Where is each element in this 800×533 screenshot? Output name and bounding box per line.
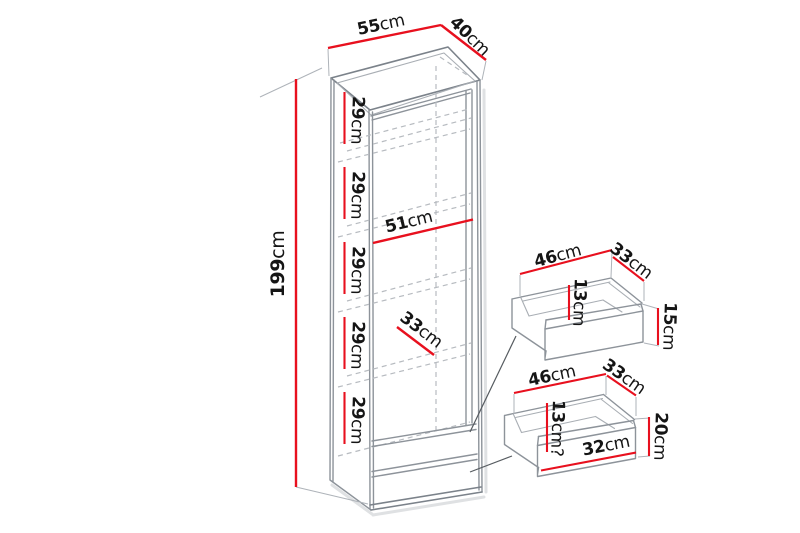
bottom-drawer-detail: 46cm 33cm 13cm? 32cm 20cm [505,355,671,478]
top-drawer-detail: 46cm 33cm 13cm 15cm [512,239,680,361]
shelf-spacing-label-1: 29cm [346,96,368,145]
shelf-spacing-label-5: 29cm [346,396,368,445]
bottom-drawer-inner-depth-label: 13cm? [546,400,568,457]
top-drawer-width-label: 46cm [532,240,584,272]
top-drawer-inner-depth-label: 13cm [568,278,590,327]
shelf-spacing-label-2: 29cm [346,171,368,220]
bottom-drawer-width-label: 46cm [526,361,577,391]
top-drawer-depth-label: 33cm [606,239,656,284]
diagram-canvas: 55cm 40cm 199cm 29cm 29cm 29cm 29cm 29cm… [0,0,800,533]
cabinet-height-label: 199cm [267,231,289,298]
shelf-spacing-label-4: 29cm [346,321,368,370]
furniture-dimension-diagram: 55cm 40cm 199cm 29cm 29cm 29cm 29cm 29cm… [0,0,800,533]
bottom-drawer-front-height-label: 20cm [649,412,671,461]
cabinet-width-label: 55cm [355,10,406,40]
shelf-spacing-label-3: 29cm [346,246,368,295]
top-drawer-front-height-label: 15cm [658,302,680,351]
